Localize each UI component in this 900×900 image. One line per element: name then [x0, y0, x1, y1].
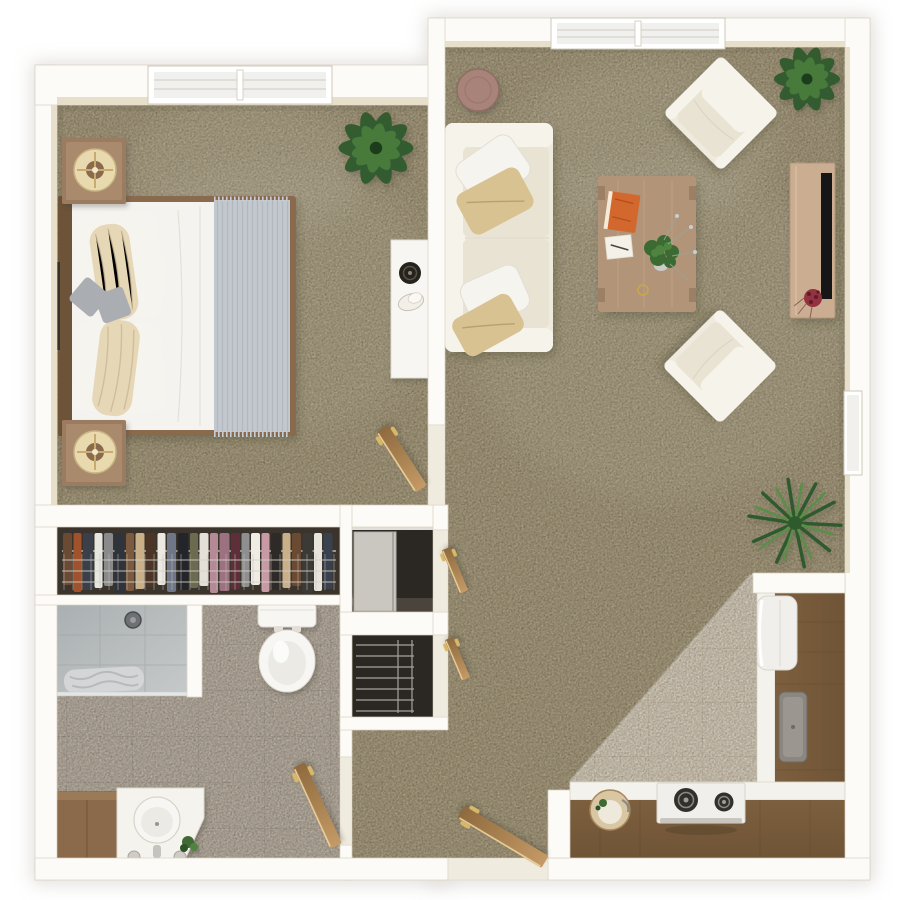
wall-between-closets	[340, 612, 448, 635]
round-sink	[590, 790, 630, 830]
sliding-door-panel	[354, 532, 396, 611]
wall-closets-right-a	[433, 505, 448, 530]
shower-glass	[57, 692, 187, 696]
toilet	[258, 603, 316, 692]
sofa	[445, 123, 553, 359]
window-mullion	[237, 70, 243, 100]
hanging-garment	[74, 533, 82, 592]
innerface-left-bedroom	[51, 105, 57, 505]
window-mullion	[635, 21, 641, 46]
wall-bottom-right	[548, 858, 870, 880]
bottom-counter	[570, 782, 845, 858]
tv-console	[790, 163, 835, 318]
sliding-closet	[352, 530, 433, 613]
hanging-garment	[136, 533, 145, 589]
toilet-tank	[258, 603, 316, 627]
wall-bedroom-closet	[35, 505, 448, 527]
coffee-table	[598, 176, 697, 312]
hanging-garment	[158, 533, 166, 585]
linen-closet	[352, 635, 433, 717]
nightstand-top	[62, 138, 126, 204]
linen-closet-interior	[352, 635, 433, 717]
bed	[58, 196, 296, 436]
faucet-spout	[153, 845, 161, 858]
right-wall-window	[844, 391, 862, 475]
hanging-garment	[167, 533, 176, 592]
shower-partition-wall	[187, 605, 202, 697]
inset-sink	[779, 692, 807, 762]
wall-kitchen-stub	[548, 790, 570, 858]
vanity	[57, 788, 204, 866]
hanging-garment	[303, 533, 313, 593]
living-window	[551, 18, 725, 49]
sink-sprig	[599, 799, 607, 807]
wall-closet-bathroom	[35, 595, 352, 605]
floorplan-stage	[0, 0, 900, 900]
tv-screen	[821, 173, 832, 299]
shower	[57, 605, 202, 697]
wall-bottom-left	[35, 858, 448, 880]
closet-hall	[57, 527, 340, 595]
oven-handle	[660, 818, 742, 823]
refrigerator	[757, 596, 797, 670]
round-side-table	[457, 69, 499, 111]
drain	[155, 822, 159, 826]
book	[604, 191, 641, 233]
sliding-closet-opening	[433, 530, 448, 612]
floorplan-render	[0, 0, 900, 900]
headboard	[58, 196, 72, 436]
bathroom-doorway	[340, 757, 352, 845]
bedroom-window	[148, 66, 332, 104]
bedroom-doorway	[428, 425, 445, 505]
wall-divider-bedroom-living	[428, 18, 445, 425]
hanging-garment	[115, 533, 125, 593]
towel	[63, 666, 144, 694]
hanging-garment	[262, 533, 270, 592]
throw-blanket	[214, 199, 290, 434]
notepad	[605, 235, 633, 260]
innerface-right	[845, 47, 850, 573]
wall-linen-closet-bottom	[340, 717, 448, 730]
wall-kitchen-top	[753, 573, 845, 593]
drain	[791, 725, 795, 729]
hanging-garment	[251, 533, 260, 585]
nightstand-bottom	[62, 420, 126, 486]
hanging-garment	[231, 533, 240, 589]
white-desk	[391, 240, 430, 378]
wall-closets-right-b	[433, 612, 448, 635]
